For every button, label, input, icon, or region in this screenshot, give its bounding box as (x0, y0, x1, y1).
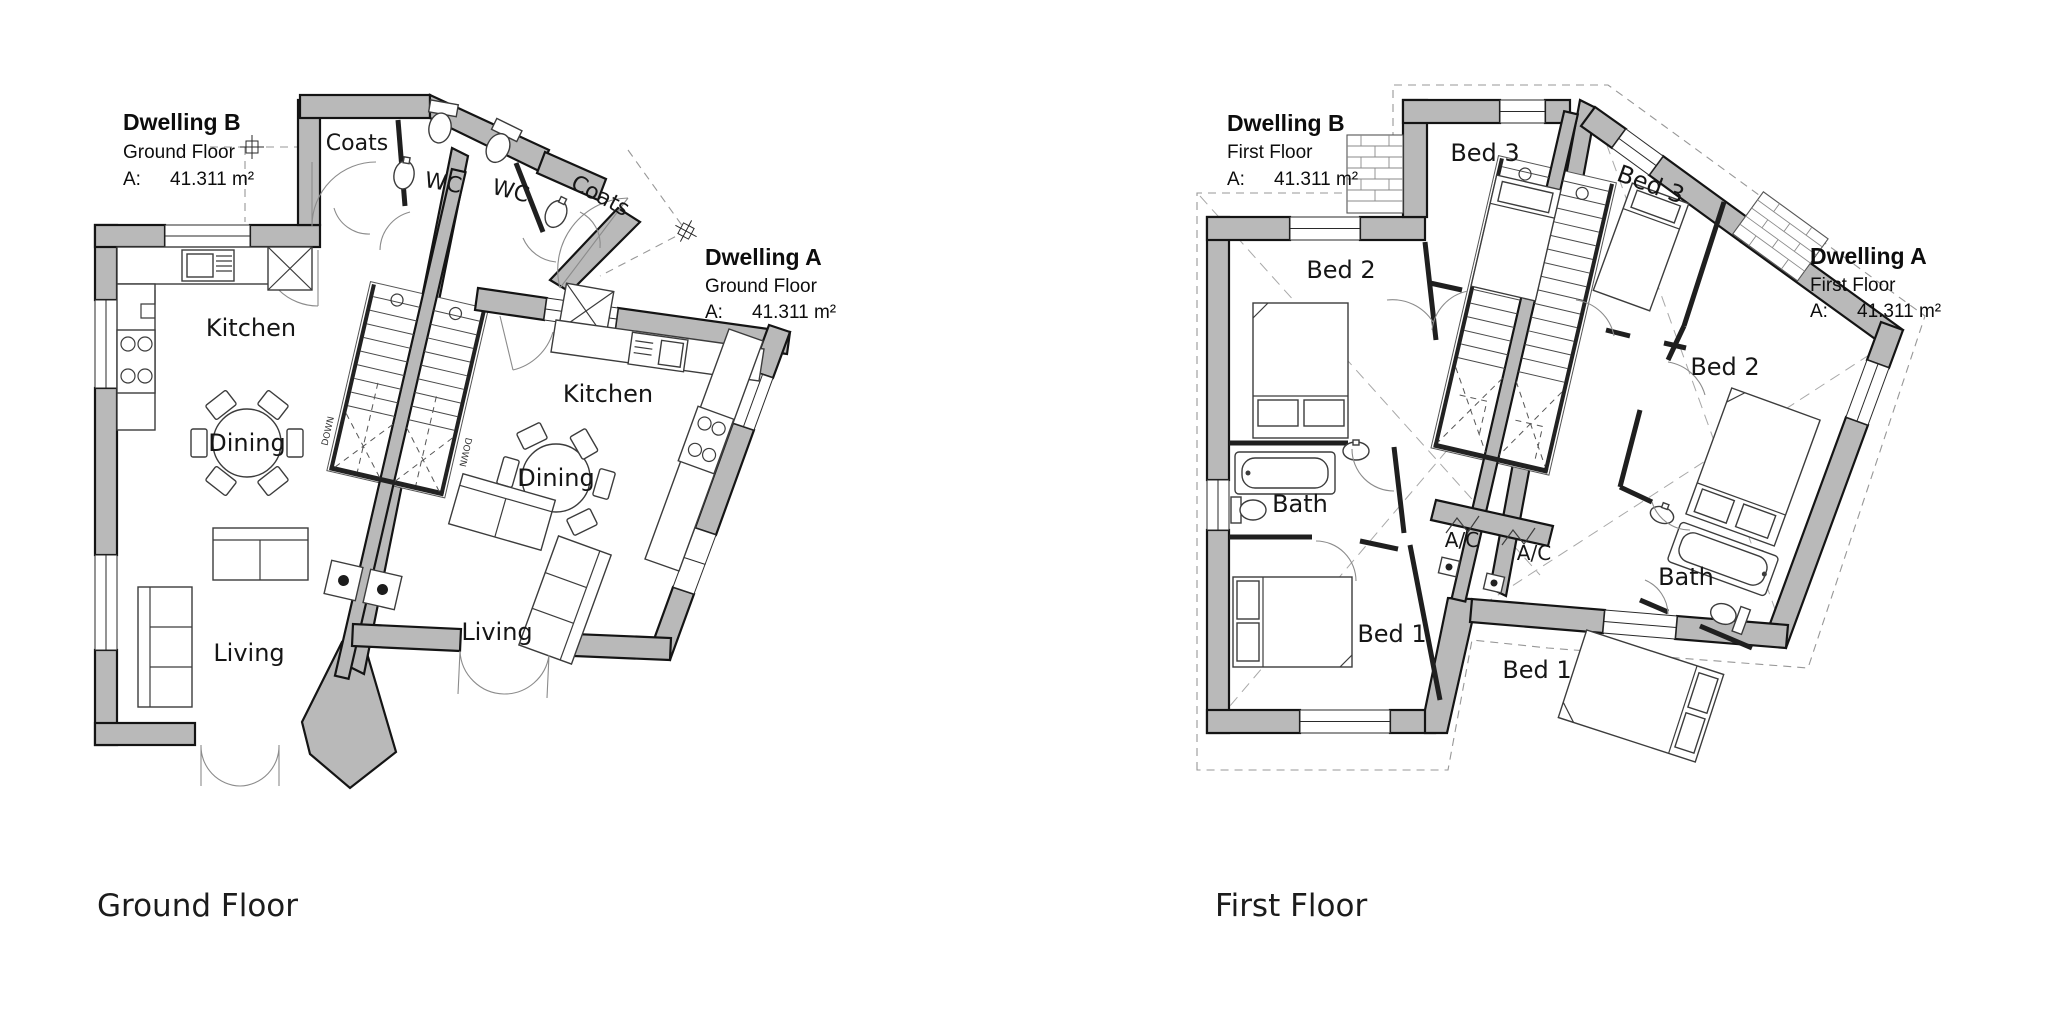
bed-icon (1253, 303, 1348, 438)
first-floor-title: First Floor (1215, 888, 1367, 924)
label-bed1-a: Bed 1 (1502, 656, 1571, 684)
label-coats-b: Coats (326, 131, 388, 156)
label-bed2-b: Bed 2 (1306, 256, 1375, 284)
first-dwelling-a-area-label: A: (1810, 301, 1828, 322)
ground-dwelling-b-name: Dwelling B (123, 109, 241, 135)
label-dining-a: Dining (517, 464, 594, 492)
first-dwelling-b-area-label: A: (1227, 169, 1245, 190)
label-bath-a: Bath (1658, 563, 1714, 591)
ground-dwelling-a-floor: Ground Floor (705, 276, 818, 297)
first-dwelling-b-name: Dwelling B (1227, 110, 1345, 136)
ground-dwelling-a-name: Dwelling A (705, 244, 822, 270)
floor-plan-sheet: DOWN DOWN (0, 0, 2048, 1022)
ground-dwelling-a-area-label: A: (705, 302, 723, 323)
sofa-icon (138, 587, 192, 707)
label-living-a: Living (461, 618, 532, 646)
first-dwelling-a-floor: First Floor (1810, 275, 1896, 296)
label-dining-b: Dining (208, 429, 285, 457)
label-bed2-a: Bed 2 (1690, 353, 1759, 381)
first-dwelling-a-area-value: 41.311 m² (1857, 301, 1941, 322)
label-kitchen-b: Kitchen (206, 314, 296, 342)
ground-dwelling-a-area-value: 41.311 m² (752, 302, 836, 323)
label-ac-a: A/C (1517, 541, 1551, 565)
label-ac-b: A/C (1445, 528, 1479, 552)
label-living-b: Living (213, 639, 284, 667)
ground-dwelling-b-area-label: A: (123, 169, 141, 190)
ground-floor-title: Ground Floor (97, 888, 298, 924)
first-dwelling-b-floor: First Floor (1227, 142, 1313, 163)
bed-icon (1233, 577, 1352, 667)
first-dwelling-b-area-value: 41.311 m² (1274, 169, 1358, 190)
label-bed3-b: Bed 3 (1450, 139, 1519, 167)
label-bed1-b: Bed 1 (1357, 620, 1426, 648)
label-kitchen-a: Kitchen (563, 380, 653, 408)
bathtub-icon (1235, 452, 1335, 494)
first-dwelling-a-name: Dwelling A (1810, 243, 1927, 269)
label-bath-b: Bath (1272, 490, 1328, 518)
ground-dwelling-b-area-value: 41.311 m² (170, 169, 254, 190)
ground-dwelling-b-floor: Ground Floor (123, 142, 236, 163)
